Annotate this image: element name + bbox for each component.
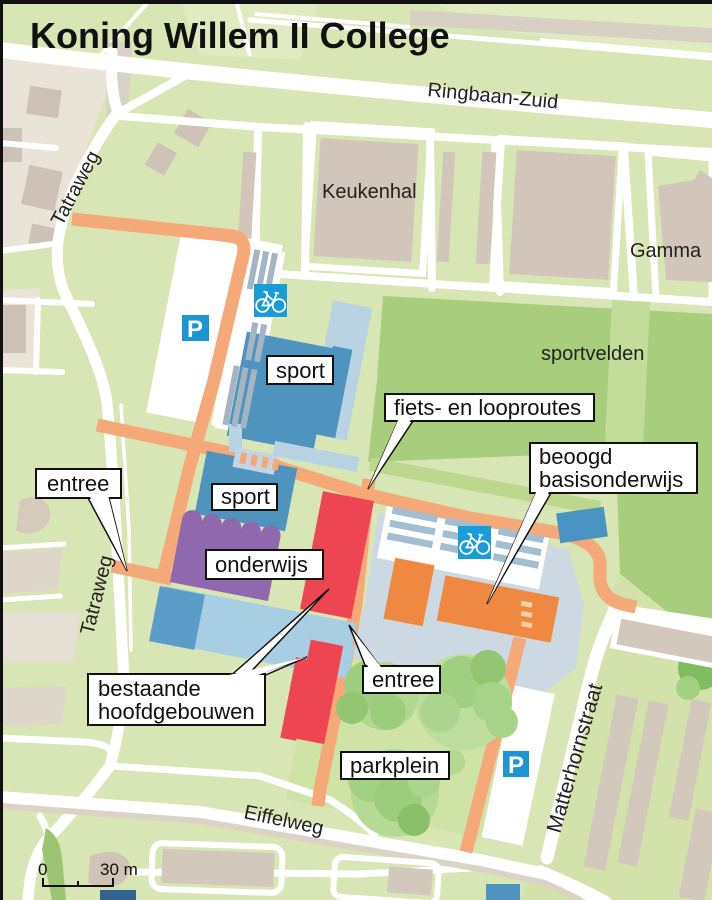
svg-text:hoofdgebouwen: hoofdgebouwen (98, 699, 255, 724)
svg-text:bestaande: bestaande (98, 676, 201, 701)
svg-text:sport: sport (276, 358, 325, 383)
svg-text:Koning Willem II College: Koning Willem II College (30, 15, 450, 56)
svg-text:entree: entree (47, 471, 109, 496)
svg-text:Gamma: Gamma (630, 240, 702, 262)
svg-text:P: P (508, 752, 524, 779)
svg-text:Keukenhal: Keukenhal (322, 181, 417, 203)
svg-text:P: P (187, 316, 203, 343)
svg-text:parkplein: parkplein (350, 753, 439, 778)
svg-text:sportvelden: sportvelden (541, 343, 644, 365)
svg-text:0: 0 (38, 860, 47, 879)
svg-text:entree: entree (372, 667, 434, 692)
svg-text:onderwijs: onderwijs (215, 552, 308, 577)
svg-text:30 m: 30 m (100, 860, 138, 879)
svg-text:fiets- en looproutes: fiets- en looproutes (394, 395, 581, 420)
svg-text:beoogd: beoogd (539, 444, 612, 469)
svg-text:basisonderwijs: basisonderwijs (539, 467, 683, 492)
svg-text:sport: sport (221, 484, 270, 509)
